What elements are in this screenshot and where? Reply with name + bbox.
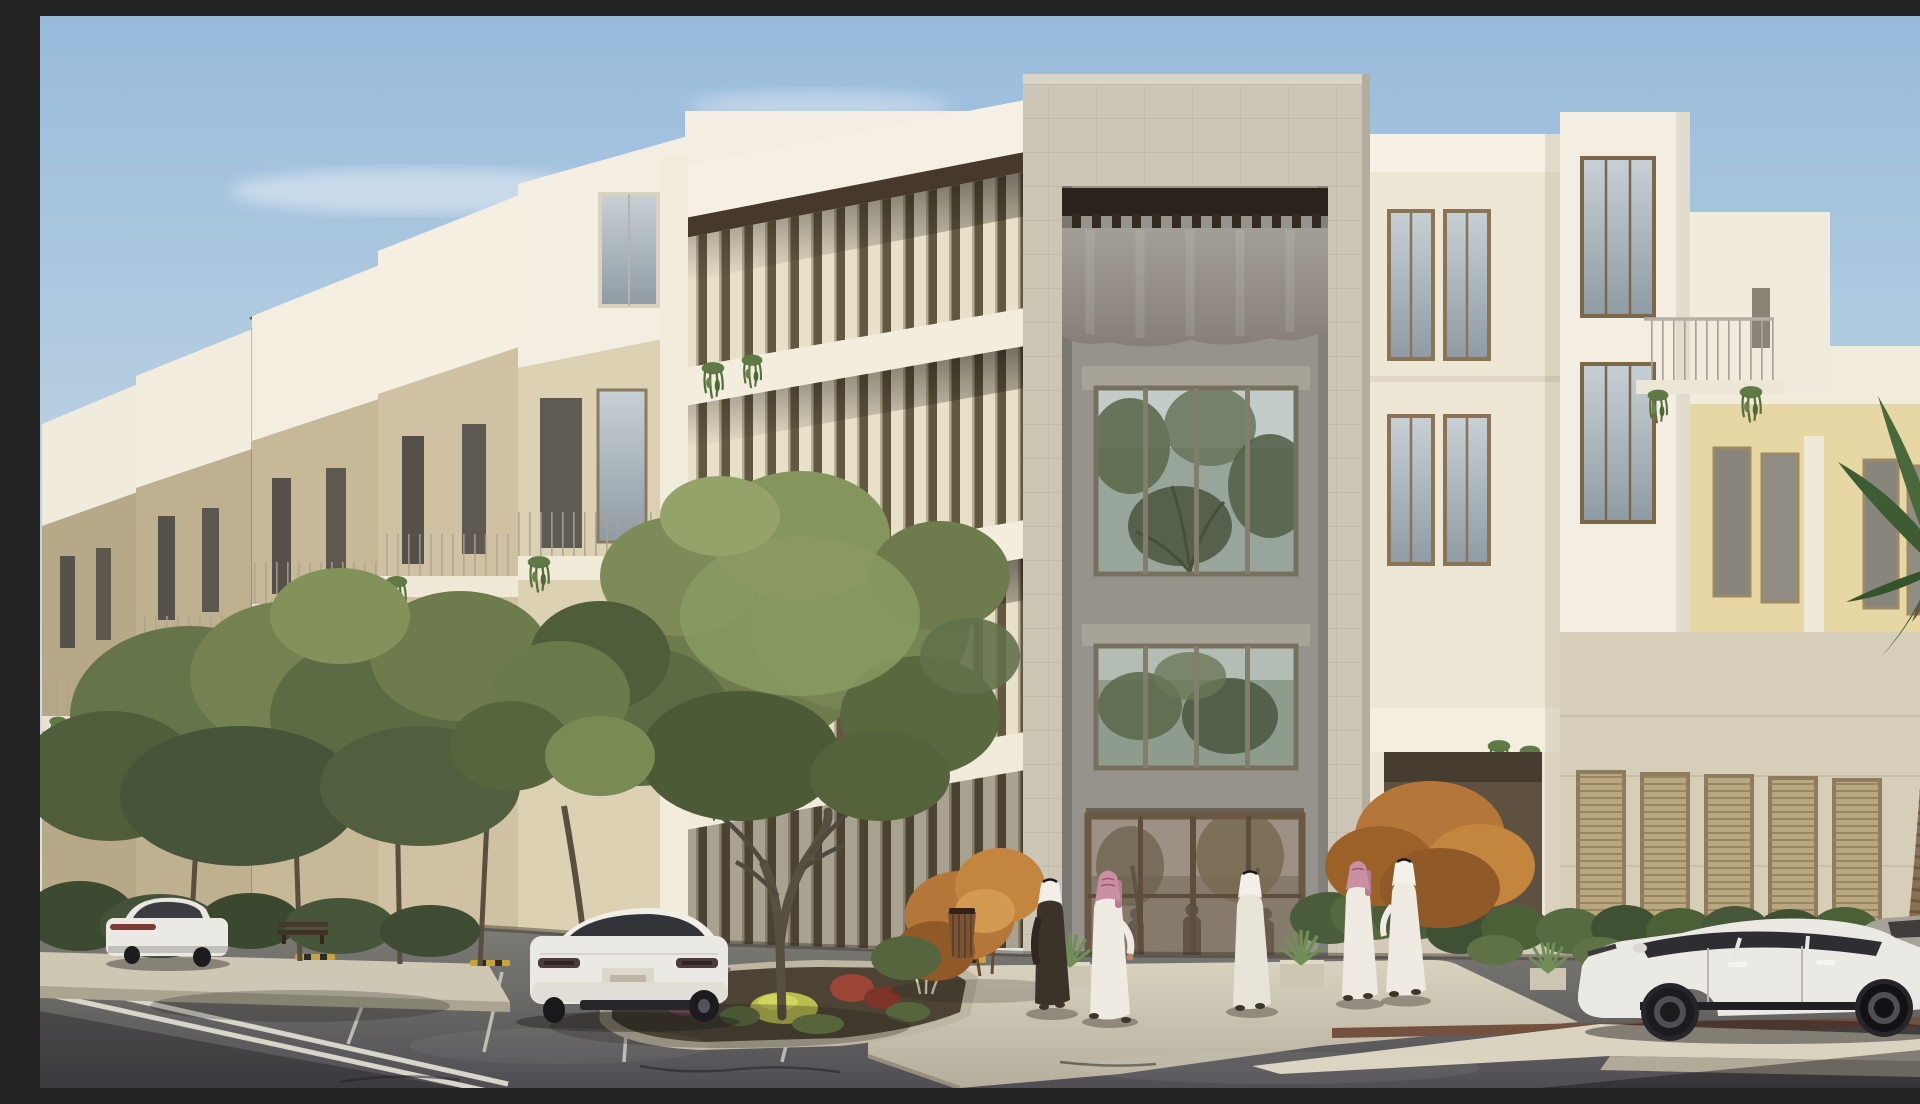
wheel-stop (470, 960, 510, 966)
architectural-rendering: Daytime architectural rendering of a mod… (40, 16, 1920, 1088)
balcony-slab (1370, 708, 1565, 752)
window (1714, 448, 1750, 596)
entrance-portal (1023, 74, 1370, 1018)
window (96, 548, 111, 640)
pilaster (1804, 436, 1824, 658)
window (158, 516, 175, 620)
window (202, 508, 219, 612)
lobby-window-upper (1082, 366, 1312, 574)
window (60, 556, 75, 648)
lobby-window-mid (1082, 624, 1310, 768)
facade-window (1582, 158, 1654, 316)
balcony-railing (378, 534, 522, 576)
window (1762, 454, 1798, 602)
litter-bin (948, 908, 976, 958)
